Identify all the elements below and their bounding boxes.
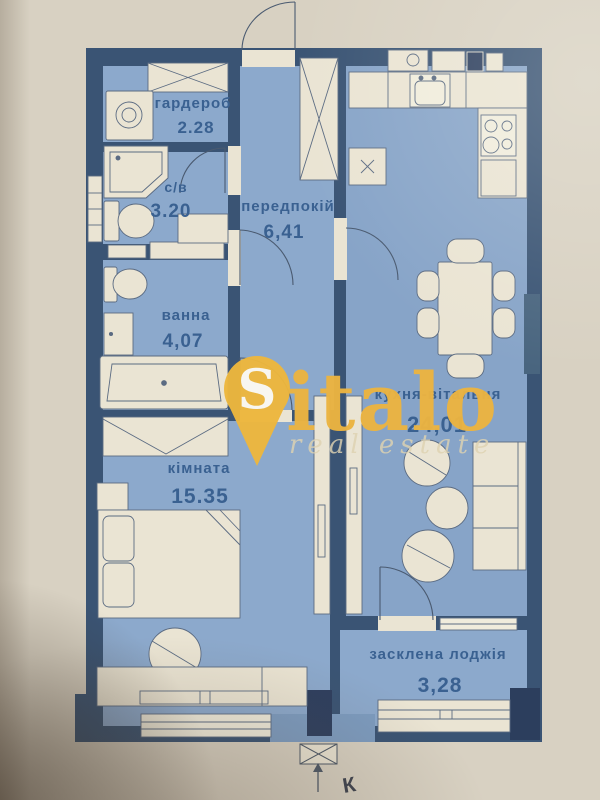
photo-background: гардероб 2.28 с/в 3.20 передпокій 6,41 в… [0,0,600,800]
room-area-hallway: 6,41 [264,222,305,243]
loggia-sill-icon [378,700,510,732]
towel-rail-icon [88,176,102,242]
watermark-initial: S [238,357,277,421]
watermark-tagline: real estate [289,430,495,460]
bed-icon [98,510,240,618]
room-area-loggia: 3,28 [418,674,463,697]
room-area-wc: 3.20 [151,201,192,222]
bathroom-door-opening [228,230,241,286]
room-label-hallway: передпокій [241,198,335,215]
north-arrow-icon [313,763,323,792]
loggia-corner-block [510,688,540,740]
toilet-icon [104,201,154,241]
wall-bottom-left-step [75,694,89,742]
partition-shelves [108,242,224,259]
washing-machine-icon [106,91,153,140]
room-label-loggia: засклена лоджія [369,646,506,663]
desk-icon [97,667,307,706]
vent-boxes-icon [388,50,503,71]
stove-icon [481,115,516,156]
entrance-opening [242,50,295,67]
wardrobe-icon [103,417,228,456]
room-label-bathroom: ванна [162,307,211,324]
room-area-bedroom: 15.35 [171,485,229,508]
wc-door-opening [228,146,241,195]
coffee-table-icon [426,487,468,529]
kitchen-sink-icon [410,74,450,107]
vent-pillar [307,690,332,736]
sofa-icon [473,442,526,570]
tall-cabinet-icon [300,58,338,180]
bath-cabinet-icon [104,313,133,355]
compass-label: К [341,773,358,798]
nightstand-icon [97,483,128,510]
kitchen-door-opening [334,218,347,280]
closet-icon [148,63,228,92]
room-label-wc: с/в [164,179,187,195]
room-label-bedroom: кімната [168,460,231,477]
room-label-wardrobe: гардероб [155,95,232,112]
entrance-door-arc [242,2,295,50]
dishwasher-icon [349,148,386,185]
vent-shaft-icon [300,744,337,764]
loggia-door-opening [378,616,436,631]
dining-table-icon [438,262,492,355]
armchair-icon [402,530,454,582]
loggia-window [440,618,517,630]
room-area-bathroom: 4,07 [163,331,204,352]
right-wall-window [524,294,540,374]
room-area-wardrobe: 2.28 [177,118,214,137]
bathtub-icon [100,356,228,409]
floor-plan-image: гардероб 2.28 с/в 3.20 передпокій 6,41 в… [0,0,600,800]
bedroom-window [141,714,271,737]
